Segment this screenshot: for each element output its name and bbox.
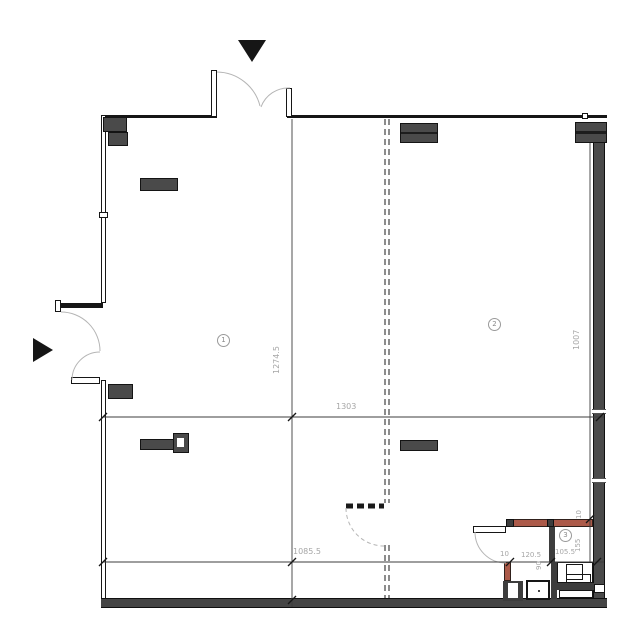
column-top-left-b	[108, 132, 128, 146]
top-door-arc-left	[217, 72, 260, 106]
dim-label-1303: 1303	[336, 402, 356, 411]
left-door-head-wall	[58, 303, 103, 308]
toilet-bowl	[508, 583, 518, 598]
dim-label-bath-105-5: 105.5	[555, 548, 575, 556]
room-2-bubble: 2	[488, 318, 501, 331]
sink-dot	[538, 590, 540, 592]
column-top-left-a	[103, 117, 127, 132]
dim-label-1274-5: 1274.5	[272, 330, 281, 374]
radiator-room1-bottom	[140, 439, 177, 450]
bath-wall-left-lower	[504, 562, 511, 581]
entrance-arrow-top-icon	[238, 40, 266, 62]
left-door-jamb	[55, 300, 61, 312]
right-wall-window	[594, 584, 605, 593]
dim-label-right-155: 155	[574, 534, 582, 552]
dim-label-1085-5: 1085.5	[293, 547, 321, 556]
left-wall-upper	[101, 115, 106, 303]
column-left-door	[108, 384, 133, 399]
column-top-right	[575, 122, 607, 143]
bath-tray	[559, 590, 593, 598]
left-wall-joint	[99, 212, 108, 218]
floor-plan-canvas: 1303 1085.5 1274.5 1007 10 120.5 105.5 9…	[0, 0, 643, 644]
valve-room1-bottom	[173, 433, 189, 453]
entrance-arrow-left-icon	[33, 338, 53, 362]
plan-lines-layer	[0, 0, 643, 644]
top-door-leaf-right	[286, 88, 292, 117]
left-door-arc-upper	[61, 312, 100, 351]
top-wall-right	[287, 115, 607, 118]
valve-inner	[177, 438, 184, 447]
bath-ledge	[551, 583, 594, 590]
radiator-room2-bottom	[400, 440, 438, 451]
bath-door-leaf	[473, 526, 506, 533]
bath-door-arc	[475, 532, 506, 563]
left-door-leaf	[71, 377, 100, 384]
left-door-arc-lower	[72, 352, 100, 380]
bath-counter-shelf	[566, 574, 591, 583]
top-wall-joint	[582, 113, 588, 119]
column-top-right-band	[576, 131, 606, 134]
right-wall-joint-1	[592, 409, 606, 414]
dim-label-right-10: 10	[575, 507, 583, 519]
right-wall	[593, 143, 605, 598]
bath-wall-cap-left	[506, 519, 514, 527]
top-door-leaf-left	[211, 70, 217, 117]
bath-partition-upper	[549, 527, 555, 562]
dim-label-1007: 1007	[572, 318, 581, 350]
dashed-partition	[346, 119, 389, 598]
toilet	[503, 581, 523, 601]
dim-label-bath-90: 90	[535, 556, 543, 570]
radiator-room2-top	[400, 123, 438, 143]
room-1-bubble: 1	[217, 334, 230, 347]
room-3-bubble: 3	[559, 529, 572, 542]
left-wall-lower	[101, 380, 106, 608]
radiator-room2-band	[401, 132, 437, 134]
bath-wall-post-mid	[547, 519, 554, 527]
right-wall-joint-2	[592, 478, 606, 483]
sink-cabinet	[526, 580, 550, 600]
partition-door-arc	[346, 508, 384, 546]
dimension-lines	[103, 119, 604, 607]
dim-label-bath-10: 10	[500, 550, 509, 558]
radiator-room1-top	[140, 178, 178, 191]
